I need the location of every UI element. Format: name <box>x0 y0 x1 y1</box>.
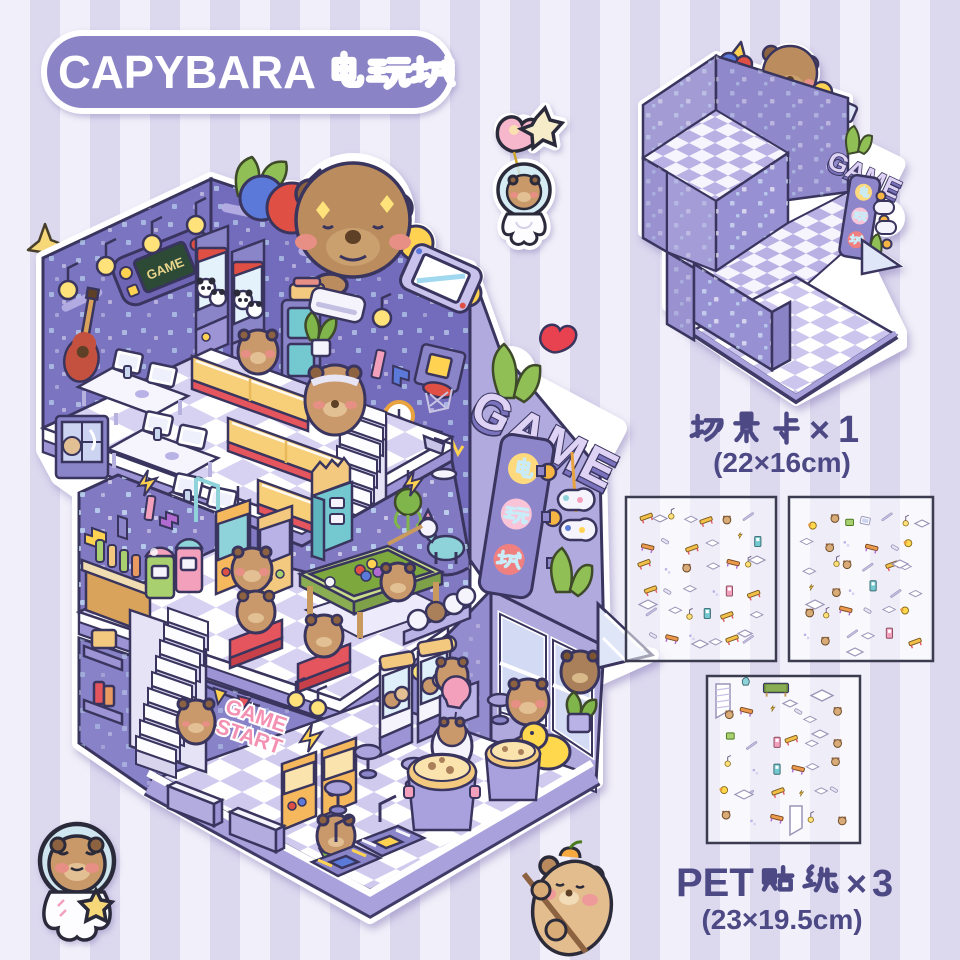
svg-text:PET: PET <box>676 861 754 905</box>
svg-text:(22×16cm): (22×16cm) <box>713 447 851 478</box>
svg-text:CAPYBARA: CAPYBARA <box>58 46 316 98</box>
svg-text:1: 1 <box>838 409 859 451</box>
svg-text:×: × <box>809 409 830 450</box>
svg-text:3: 3 <box>872 863 893 905</box>
svg-text:(23×19.5cm): (23×19.5cm) <box>701 904 862 935</box>
svg-text:×: × <box>846 863 867 904</box>
